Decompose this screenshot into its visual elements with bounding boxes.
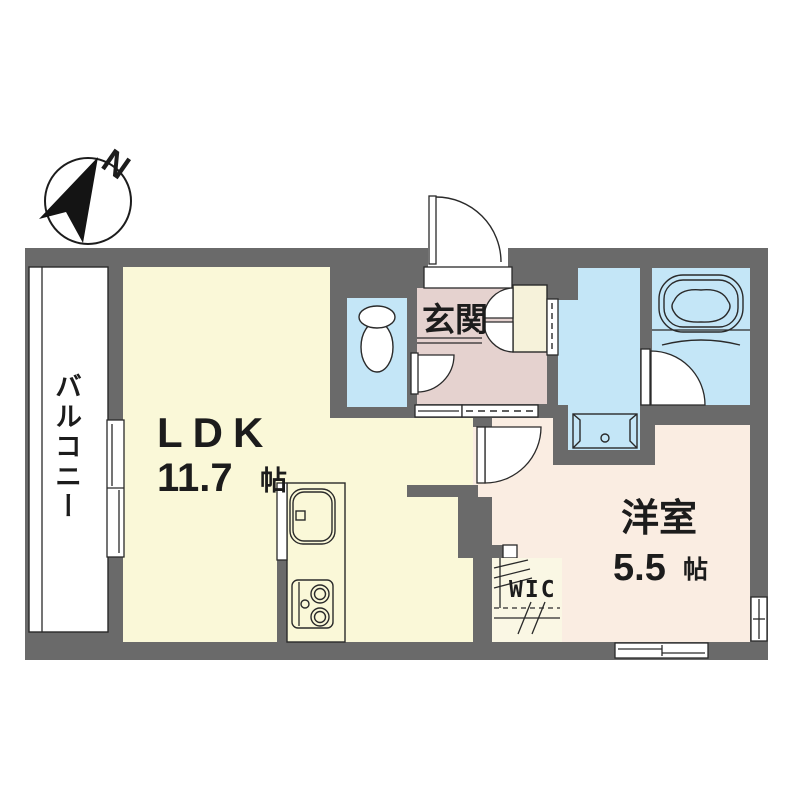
window-balcony [107,420,124,557]
ldk-label: LDK [157,409,273,456]
floorplan-canvas: N [0,0,800,800]
wic-door-jamb [503,545,517,558]
compass-needle [39,157,98,243]
bathroom-door-leaf [641,349,650,405]
ldk-area-value: 11.7 [157,456,233,500]
kitchen-counter [277,483,345,642]
entrance-porch [424,267,512,288]
window-east [751,597,767,641]
wall-washroom-bottom [640,405,750,425]
compass-icon: N [39,142,137,244]
toilet-door-leaf [411,353,418,394]
toilet-icon [359,306,395,372]
shoe-cabinet [513,285,547,352]
floorplan-svg: N [0,0,800,800]
wall-stub-ldk [407,485,478,497]
ldk-area-unit: 帖 [260,466,287,496]
entrance-door-leaf [429,196,436,264]
entrance-opening [428,248,508,268]
balcony-label: バルコニー [51,372,81,522]
entrance-label: 玄関 [422,301,488,338]
wall-kitchen-lower [277,560,287,642]
wic-label: WIC [509,577,557,603]
western-room-label: 洋室 [621,497,697,540]
wall-nook-bottom [553,450,655,465]
window-south [615,643,708,658]
compass-north-label: N [95,142,137,187]
wall-wic-left [473,558,492,642]
western-room-area-unit: 帖 [683,556,708,584]
bedroom-door-leaf [477,427,485,483]
washer-nook-floor [568,412,640,450]
western-room-area-value: 5.5 [613,547,666,589]
wall-wic-top [473,545,503,558]
